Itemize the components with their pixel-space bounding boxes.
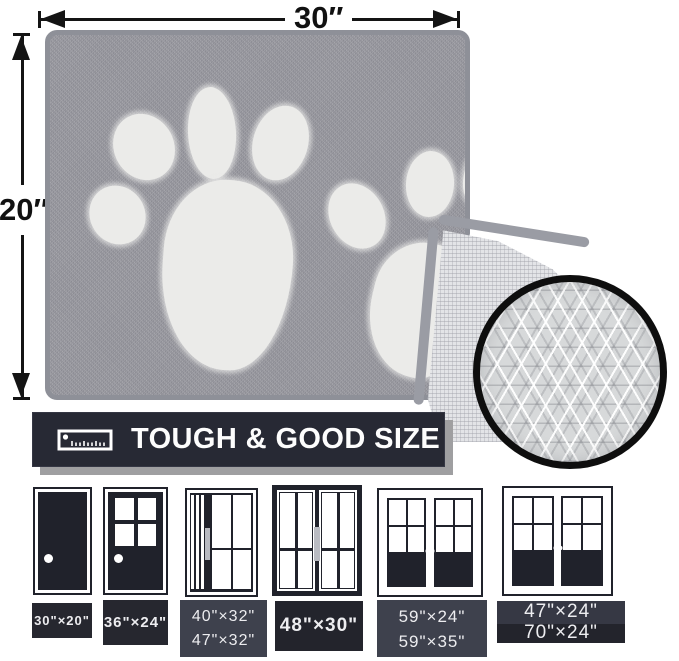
- door-sliding-panel-right: [319, 490, 357, 591]
- door-narrow-panel: [190, 494, 205, 590]
- door-knob-icon: [114, 554, 123, 563]
- paw-right-toe-left: [317, 173, 397, 258]
- door-knob-icon: [553, 546, 562, 550]
- banner-title: TOUGH & GOOD SIZE: [131, 423, 440, 456]
- door-frame: [379, 490, 481, 595]
- door-leaf-right: [561, 496, 603, 586]
- door-solid-single: [33, 487, 92, 595]
- arrowhead-left-icon: [41, 10, 65, 28]
- size-text: 30"×20": [34, 613, 90, 628]
- arrowhead-up-icon: [12, 36, 30, 60]
- door-glass-panes: [514, 498, 552, 550]
- height-arrow-end-cap-bottom: [13, 397, 30, 400]
- door-handle-icon: [205, 528, 210, 560]
- paw-left-toe-upper: [102, 103, 187, 191]
- size-text: 59"×24": [399, 604, 466, 629]
- ruler-icon: [57, 428, 113, 452]
- paw-left-toe-right: [244, 99, 318, 187]
- door-leaf-left: [512, 496, 554, 586]
- size-text: 47"×24": [524, 601, 598, 622]
- door-double-sliding: [272, 485, 362, 596]
- mat-illustration: [45, 30, 470, 400]
- door-leaf-right: [434, 498, 473, 587]
- door-sliding-side-panel: [185, 488, 258, 597]
- door-glass-panes: [563, 498, 601, 550]
- door-half-glass-single: [103, 487, 168, 595]
- paw-left-main-pad: [156, 176, 299, 375]
- paw-left-toe-middle: [186, 86, 239, 180]
- door-glass-panes: [436, 500, 471, 552]
- height-dimension-label: 20″: [0, 185, 48, 235]
- door-knob-icon: [44, 554, 53, 563]
- door-frame: [187, 490, 256, 595]
- product-size-diagram: 30″ 20″: [0, 0, 679, 661]
- door-french-double-wide: [502, 486, 613, 596]
- door-leaf-left: [387, 498, 426, 587]
- width-arrow-end-cap-right: [457, 11, 460, 28]
- paw-left-toe-outer: [79, 175, 157, 254]
- door-size-label-6: 47"×24" 70"×24": [497, 601, 625, 643]
- door-frame: [35, 489, 90, 593]
- door-glass-panes: [389, 500, 424, 552]
- size-text: 48"×30": [280, 615, 358, 637]
- door-french-double: [377, 488, 483, 597]
- door-size-label-2: 36"×24": [103, 600, 168, 645]
- door-size-label-1: 30"×20": [32, 603, 92, 638]
- height-arrow: 20″: [8, 33, 42, 400]
- size-text: 36"×24": [104, 614, 167, 631]
- door-knob-icon: [426, 549, 435, 553]
- size-text: 47"×32": [192, 629, 255, 653]
- door-size-label-4: 48"×30": [275, 601, 363, 651]
- door-window-panes: [113, 496, 158, 548]
- paw-right-toe-upper: [404, 149, 456, 218]
- size-text: 40"×32": [192, 605, 255, 629]
- door-frame: [105, 489, 166, 593]
- door-size-label-3: 40"×32" 47"×32": [180, 600, 267, 657]
- arrowhead-down-icon: [12, 373, 30, 397]
- door-sliding-panel-left: [277, 490, 315, 591]
- backing-texture-magnifier: [473, 275, 667, 469]
- arrowhead-right-icon: [433, 10, 457, 28]
- size-text: 59"×35": [399, 629, 466, 654]
- door-size-label-5: 59"×24" 59"×35": [377, 600, 487, 657]
- width-arrow: 30″: [38, 6, 460, 32]
- width-arrow-line: [40, 18, 458, 21]
- door-frame: [504, 488, 611, 594]
- size-banner: TOUGH & GOOD SIZE: [32, 412, 445, 467]
- door-glass-panel: [211, 494, 252, 590]
- size-text: 70"×24": [524, 622, 598, 643]
- door-handle-icon: [314, 527, 320, 561]
- paw-right-toe-right: [453, 127, 470, 215]
